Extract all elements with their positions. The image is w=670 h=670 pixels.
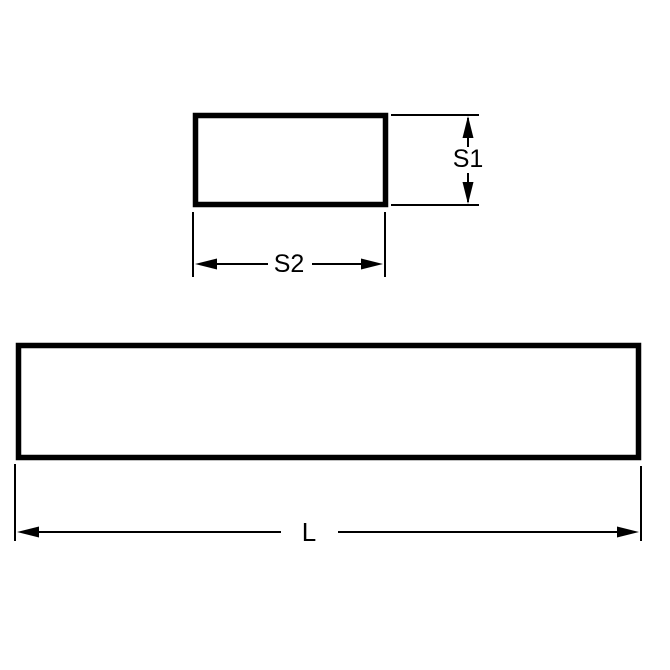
- cross-section-view: S1 S2: [193, 115, 483, 278]
- l-dimension-label: L: [302, 517, 316, 547]
- arrow-right-icon: [617, 527, 639, 538]
- arrow-left-icon: [195, 259, 217, 270]
- dimension-s1: S1: [391, 115, 483, 205]
- side-view-rectangle: [19, 346, 639, 458]
- arrow-left-icon: [17, 527, 39, 538]
- cross-section-rectangle: [196, 116, 386, 205]
- side-view: L: [15, 346, 641, 548]
- s1-dimension-label: S1: [453, 145, 484, 173]
- arrow-down-icon: [463, 182, 474, 204]
- dimension-l: L: [15, 464, 641, 547]
- dimension-s2: S2: [193, 212, 385, 278]
- arrow-up-icon: [463, 116, 474, 138]
- keystock-dimension-drawing: S1 S2 L: [0, 0, 670, 670]
- arrow-right-icon: [361, 259, 383, 270]
- s2-dimension-label: S2: [274, 250, 305, 278]
- technical-drawing-canvas: S1 S2 L: [0, 0, 670, 670]
